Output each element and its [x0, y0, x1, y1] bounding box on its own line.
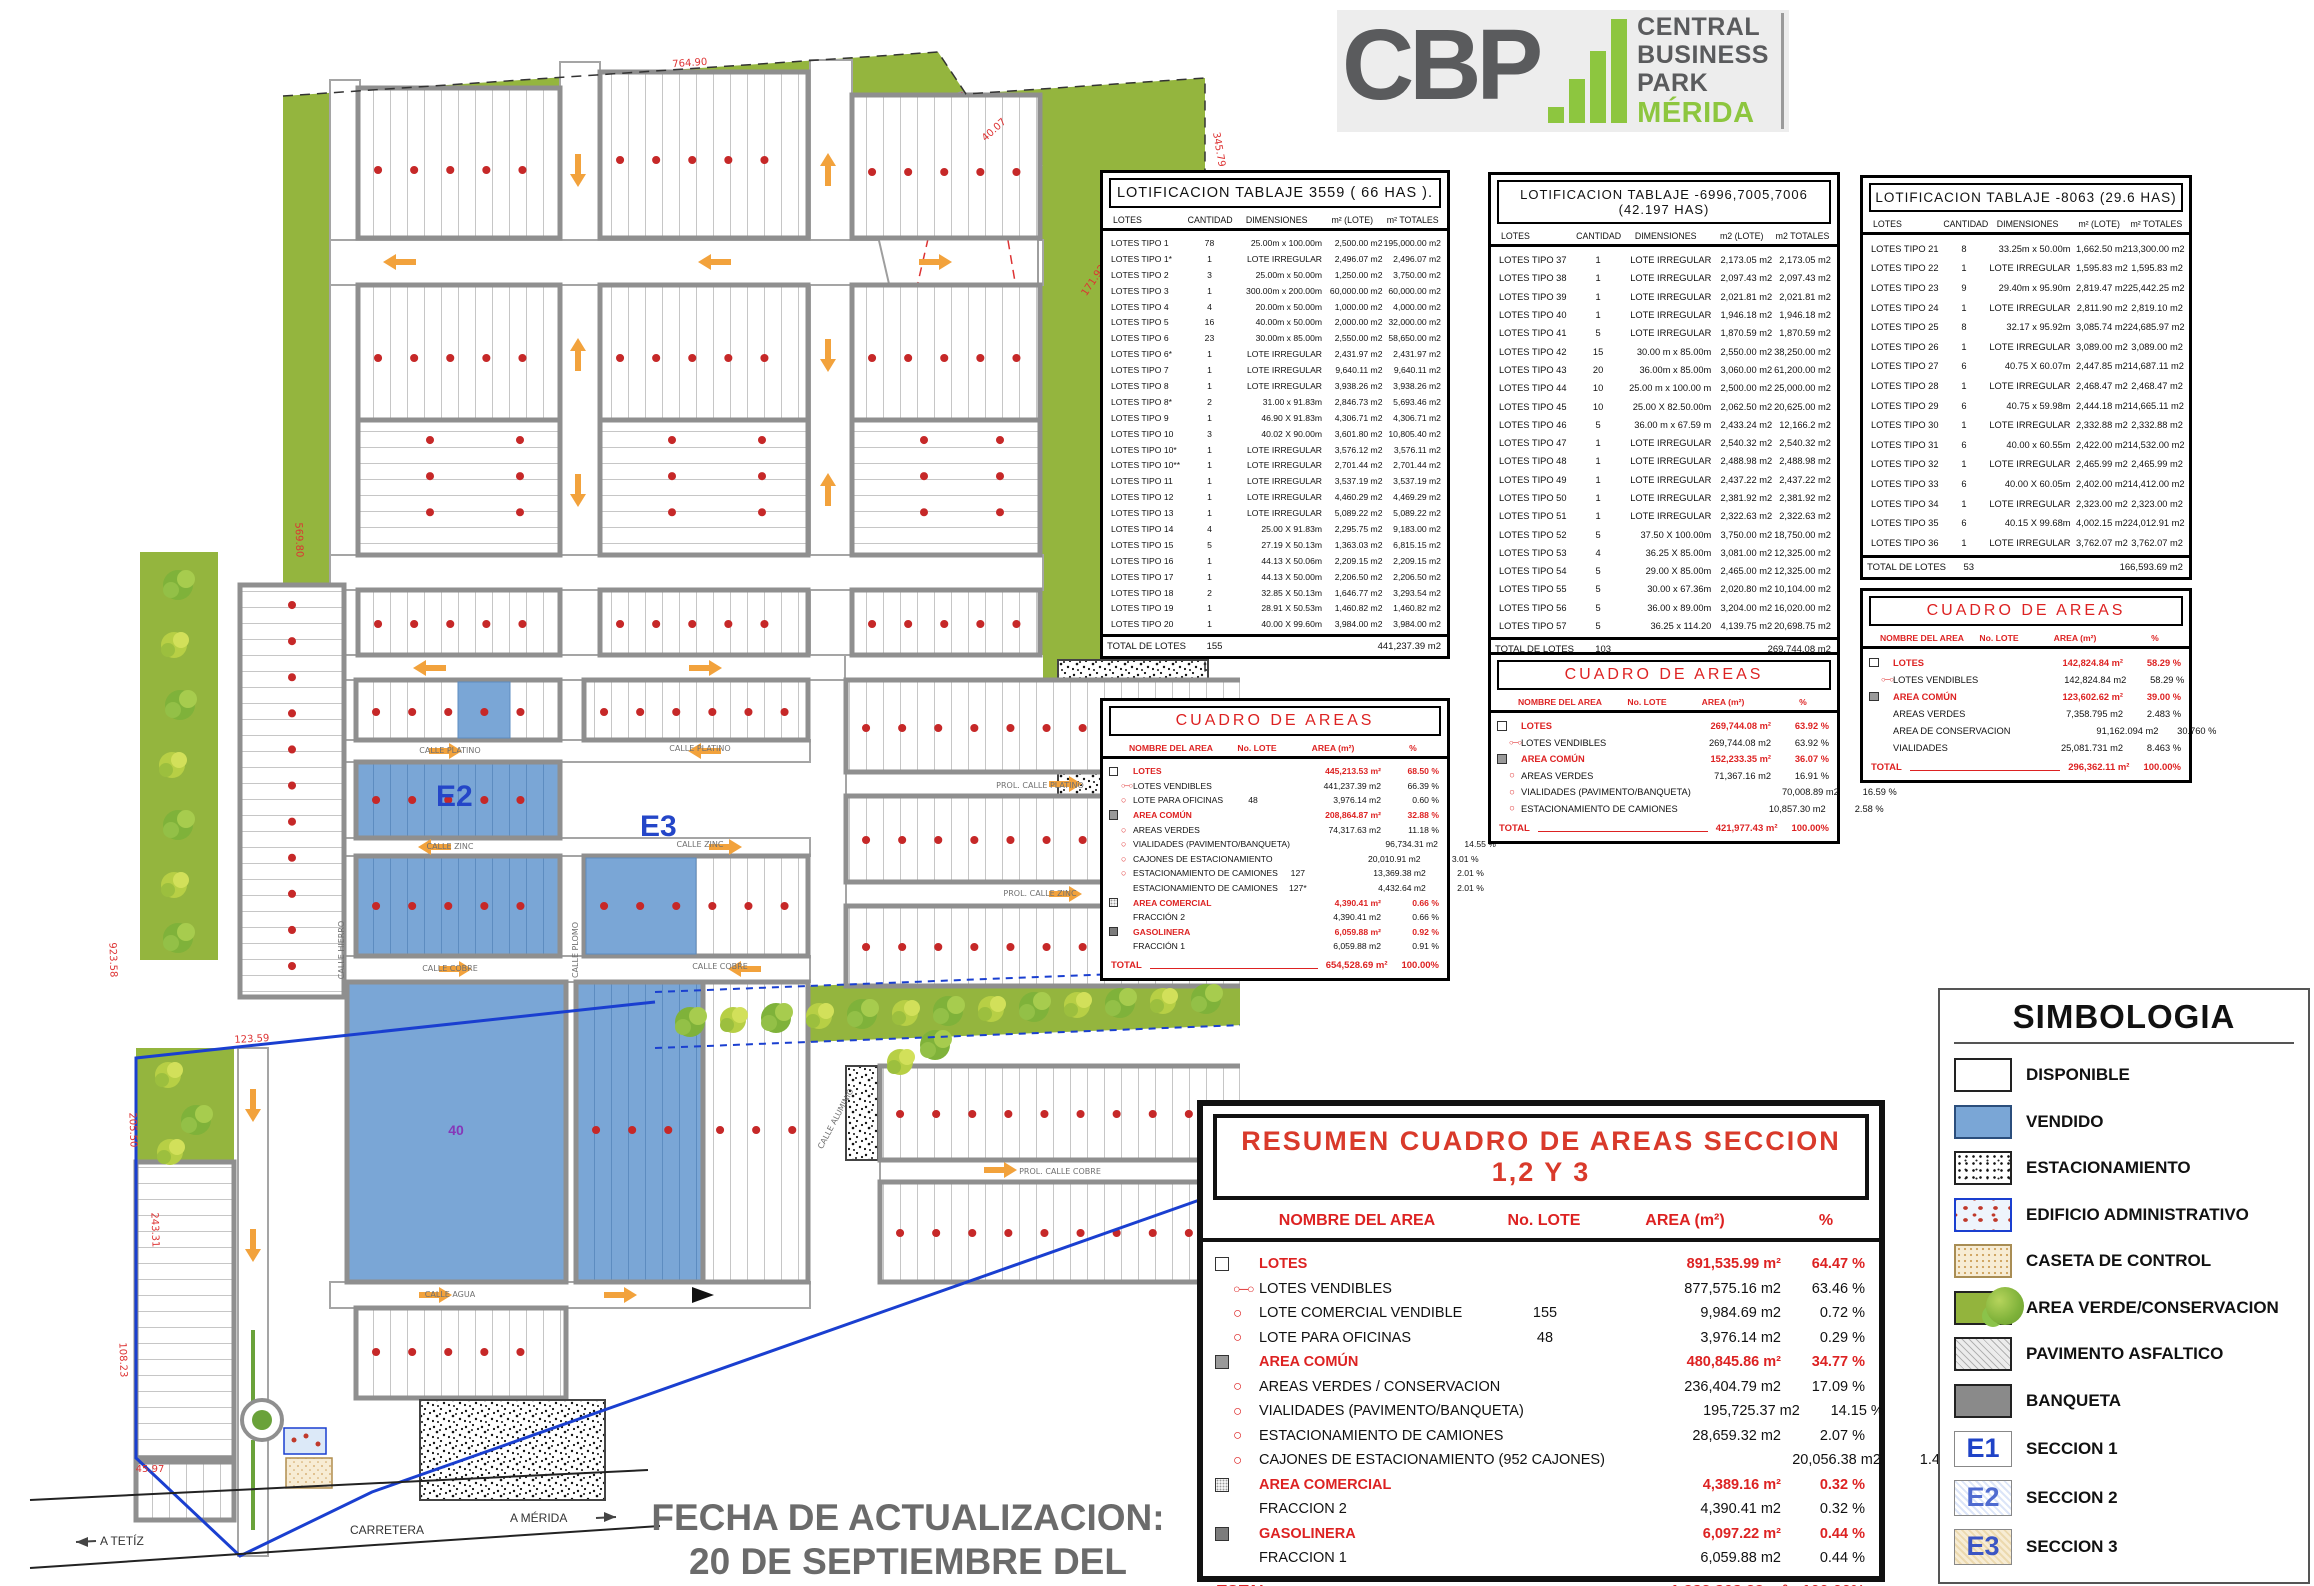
logo-city: MÉRIDA: [1637, 97, 1769, 129]
lot-row: LOTES TIPO 491LOTE IRREGULAR2,437.22 m22…: [1495, 471, 1833, 489]
area-row: AREA COMÚN480,845.86 m²34.77 %: [1215, 1350, 1867, 1375]
area-row: LOTES269,744.08 m²63.92 %: [1497, 718, 1831, 735]
area-row-icon: [1497, 721, 1521, 731]
lot-row: LOTES TIPO 121LOTE IRREGULAR4,460.29 m24…: [1107, 489, 1443, 505]
lot-row: LOTES TIPO 481LOTE IRREGULAR2,488.98 m22…: [1495, 452, 1833, 470]
legend-item: BANQUETA: [1954, 1378, 2294, 1425]
cuadro-title: CUADRO DE AREAS: [1109, 706, 1441, 736]
area-row: LOTES VENDIBLES877,575.16 m263.46 %: [1215, 1277, 1867, 1302]
lot-row: LOTES TIPO 62330.00m x 85.00m2,550.00 m2…: [1107, 330, 1443, 346]
lot-row: LOTES TIPO 111LOTE IRREGULAR3,537.19 m23…: [1107, 473, 1443, 489]
area-row-icon: [1509, 787, 1521, 798]
area-row-icon: [1869, 692, 1893, 702]
legend-item-label: DISPONIBLE: [2026, 1065, 2130, 1085]
svg-text:CALLE COBRE: CALLE COBRE: [422, 964, 478, 973]
area-row: FRACCION 16,059.88 m20.44 %: [1215, 1546, 1867, 1571]
big-lot-number: 40: [448, 1122, 464, 1138]
area-row-icon: [1233, 1427, 1259, 1444]
legend-swatch: [1954, 1291, 2012, 1325]
svg-text:CALLE COBRE: CALLE COBRE: [692, 962, 748, 971]
site-plan-map: A TETÍZ CARRETERA A MÉRIDA E2 E3 40 764.…: [0, 0, 1240, 1586]
update-date-line1: FECHA DE ACTUALIZACION:: [648, 1496, 1168, 1540]
area-row-icon: [1121, 839, 1133, 849]
cuadro-header: NOMBRE DEL AREANo. LOTEAREA (m²)%: [1491, 695, 1837, 713]
area-row-icon: [1497, 754, 1521, 764]
area-row: GASOLINERA6,059.88 m²0.92 %: [1109, 925, 1441, 940]
area-row-icon: [1121, 781, 1133, 790]
area-row: FRACCION 24,390.41 m20.32 %: [1215, 1497, 1867, 1522]
area-row-icon: [1233, 1282, 1259, 1296]
cuadro-total: TOTAL421,977.43 m²100.00%: [1491, 817, 1837, 841]
table-title: LOTIFICACION TABLAJE -8063 (29.6 HAS): [1869, 183, 2183, 212]
legend-item: PAVIMENTO ASFALTICO: [1954, 1331, 2294, 1378]
area-row: AREAS VERDES / CONSERVACION236,404.79 m2…: [1215, 1375, 1867, 1400]
area-row-icon: [1233, 1329, 1259, 1346]
legend-swatch: [1954, 1151, 2012, 1185]
lot-row: LOTES TIPO 21833.25m x 50.00m1,662.50 m2…: [1867, 239, 2185, 259]
area-row-icon: [1109, 810, 1133, 819]
cuadro-total: TOTAL654,528.69 m²100.00%: [1103, 954, 1447, 978]
svg-text:345.79: 345.79: [1210, 131, 1227, 167]
lot-row: LOTES TIPO 15527.19 X 50.13m1,363.03 m26…: [1107, 537, 1443, 553]
lot-row: LOTES TIPO 391LOTE IRREGULAR2,021.81 m22…: [1495, 288, 1833, 306]
legend-section-label: SECCION 2: [2026, 1488, 2118, 1508]
lot-row: LOTES TIPO 10340.02 X 90.00m3,601.80 m21…: [1107, 426, 1443, 442]
lot-row: LOTES TIPO 471LOTE IRREGULAR2,540.32 m22…: [1495, 434, 1833, 452]
logo-word: BUSINESS: [1637, 41, 1769, 69]
area-row-icon: [1121, 868, 1133, 878]
legend: SIMBOLOGIA DISPONIBLE VENDIDO ESTACIONAM…: [1938, 988, 2310, 1584]
area-row-icon: [1509, 803, 1521, 814]
area-row-icon: [1233, 1403, 1259, 1420]
area-row-icon: [1869, 658, 1893, 668]
legend-item: ESTACIONAMIENTO: [1954, 1145, 2294, 1192]
control-booth-icon: [286, 1458, 332, 1488]
lot-row: LOTES TIPO 33640.00 X 60.05m2,402.00 m21…: [1867, 474, 2185, 494]
area-row-icon: [1109, 767, 1133, 776]
area-row: LOTES VENDIBLES142,824.84 m258.29 %: [1869, 671, 2183, 688]
svg-text:PROL. CALLE ZINC: PROL. CALLE ZINC: [1003, 889, 1077, 898]
cuadro-title: CUADRO DE AREAS: [1497, 660, 1831, 690]
legend-swatch: [1954, 1337, 2012, 1371]
lot-row: LOTES TIPO 56536.00 x 89.00m3,204.00 m21…: [1495, 599, 1833, 617]
resumen-total: TOTAL1,382,868.23 m²100.00%: [1203, 1571, 1879, 1586]
table-title: LOTIFICACION TABLAJE 3559 ( 66 HAS ).: [1109, 178, 1441, 208]
legend-swatch: [1954, 1244, 2012, 1278]
lot-row: LOTES TIPO 451025.00 X 82.50.00m2,062.50…: [1495, 397, 1833, 415]
legend-section-label: SECCION 1: [2026, 1439, 2118, 1459]
lot-table-3: LOTIFICACION TABLAJE -8063 (29.6 HAS) LO…: [1860, 175, 2192, 580]
area-row-icon: [1215, 1478, 1259, 1492]
update-date: FECHA DE ACTUALIZACION: 20 DE SEPTIEMBRE…: [648, 1496, 1168, 1586]
lot-row: LOTES TIPO 281LOTE IRREGULAR2,468.47 m22…: [1867, 376, 2185, 396]
lot-table-2: LOTIFICACION TABLAJE -6996,7005,7006 (42…: [1488, 172, 1840, 662]
lot-row: LOTES TIPO 6*1LOTE IRREGULAR2,431.97 m22…: [1107, 346, 1443, 362]
area-row-icon: [1233, 1378, 1259, 1395]
area-row-icon: [1215, 1355, 1259, 1369]
area-row: ESTACIONAMIENTO DE CAMIONES28,659.32 m22…: [1215, 1424, 1867, 1449]
update-date-line2: 20 DE SEPTIEMBRE DEL 2023: [648, 1540, 1168, 1586]
table-header: LOTESCANTIDADDIMENSIONESm² (LOTE)m² TOTA…: [1103, 213, 1447, 231]
area-row: AREA COMERCIAL4,390.41 m²0.66 %: [1109, 895, 1441, 910]
cuadro-header: NOMBRE DEL AREANo. LOTEAREA (m²)%: [1863, 631, 2189, 649]
lot-row: LOTES TIPO 131LOTE IRREGULAR5,089.22 m25…: [1107, 505, 1443, 521]
area-row: AREAS VERDES7,358.795 m22.483 %: [1869, 705, 2183, 722]
legend-item-label: CASETA DE CONTROL: [2026, 1251, 2211, 1271]
area-row-icon: [1233, 1305, 1259, 1322]
section-code: E2: [1954, 1480, 2012, 1516]
lot-row: LOTES TIPO 52537.50 X 100.00m3,750.00 m2…: [1495, 525, 1833, 543]
lot-row: LOTES TIPO 54529.00 X 85.00m2,465.00 m21…: [1495, 562, 1833, 580]
legend-item: AREA VERDE/CONSERVACION: [1954, 1285, 2294, 1332]
area-row: LOTE PARA OFICINAS483,976.14 m20.60 %: [1109, 793, 1441, 808]
area-row: LOTES891,535.99 m²64.47 %: [1215, 1252, 1867, 1277]
resumen-table: RESUMEN CUADRO DE AREAS SECCION 1,2 Y 3 …: [1197, 1100, 1885, 1582]
lot-row: LOTES TIPO 10*1LOTE IRREGULAR3,576.12 m2…: [1107, 442, 1443, 458]
legend-section-label: SECCION 3: [2026, 1537, 2118, 1557]
lot-row: LOTES TIPO 53436.25 X 85.00m3,081.00 m21…: [1495, 544, 1833, 562]
table-total: TOTAL DE LOTES155441,237.39 m2: [1103, 634, 1447, 656]
logo-word: CENTRAL: [1637, 13, 1769, 41]
lot-row: LOTES TIPO 432036.00m x 85.00m3,060.00 m…: [1495, 361, 1833, 379]
lot-row: LOTES TIPO 27640.75 X 60.07m2,447.85 m21…: [1867, 357, 2185, 377]
area-row: CAJONES DE ESTACIONAMIENTO20,010.91 m23.…: [1109, 852, 1441, 867]
lot-row: LOTES TIPO 14425.00 X 91.83m2,295.75 m29…: [1107, 521, 1443, 537]
lot-row: LOTES TIPO 46536.00 m x 67.59 m2,433.24 …: [1495, 416, 1833, 434]
lot-row: LOTES TIPO 9146.90 X 91.83m4,306.71 m24,…: [1107, 410, 1443, 426]
lot-row: LOTES TIPO 57536.25 x 114.204,139.75 m22…: [1495, 617, 1833, 635]
svg-text:CALLE AGUA: CALLE AGUA: [425, 1290, 476, 1299]
resumen-title: RESUMEN CUADRO DE AREAS SECCION 1,2 Y 3: [1213, 1114, 1869, 1200]
area-row: AREA DE CONSERVACION91,162.094 m230.760 …: [1869, 722, 2183, 739]
lot-row: LOTES TIPO 29640.75 x 59.98m2,444.18 m21…: [1867, 396, 2185, 416]
area-row: AREA COMÚN208,864.87 m²32.88 %: [1109, 808, 1441, 823]
lot-row: LOTES TIPO 31300.00m x 200.00m60,000.00 …: [1107, 283, 1443, 299]
legend-section-item: E3 SECCION 3: [1954, 1522, 2294, 1571]
lot-row: LOTES TIPO 55530.00 x 67.36m2,020.80 m21…: [1495, 580, 1833, 598]
lot-row: LOTES TIPO 421530.00 m x 85.00m2,550.00 …: [1495, 342, 1833, 360]
area-row: ESTACIONAMIENTO DE CAMIONES127*4,432.64 …: [1109, 881, 1441, 896]
lot-row: LOTES TIPO 321LOTE IRREGULAR2,465.99 m22…: [1867, 455, 2185, 475]
cuadro-total: TOTAL296,362.11 m²100.00%: [1863, 756, 2189, 780]
area-row: AREA COMÚN123,602.62 m²39.00 %: [1869, 688, 2183, 705]
lot-row: LOTES TIPO 31640.00 x 60.55m2,422.00 m21…: [1867, 435, 2185, 455]
svg-text:45.97: 45.97: [136, 1464, 165, 1475]
cuadro-title: CUADRO DE AREAS: [1869, 596, 2183, 626]
table-title: LOTIFICACION TABLAJE -6996,7005,7006 (42…: [1497, 180, 1831, 224]
legend-swatch: [1954, 1198, 2012, 1232]
lot-row: LOTES TIPO 2325.00m x 50.00m1,250.00 m23…: [1107, 267, 1443, 283]
lot-row: LOTES TIPO 401LOTE IRREGULAR1,946.18 m21…: [1495, 306, 1833, 324]
legend-item-label: ESTACIONAMIENTO: [2026, 1158, 2191, 1178]
legend-item-label: PAVIMENTO ASFALTICO: [2026, 1344, 2223, 1364]
area-row: AREA COMÚN152,233.35 m²36.07 %: [1497, 751, 1831, 768]
svg-text:CALLE PLATINO: CALLE PLATINO: [419, 746, 480, 755]
area-row-icon: [1509, 738, 1521, 747]
area-row: AREAS VERDES74,317.63 m211.18 %: [1109, 822, 1441, 837]
legend-item-label: VENDIDO: [2026, 1112, 2103, 1132]
area-row-icon: [1233, 1452, 1259, 1469]
area-row: LOTES445,213.53 m²68.50 %: [1109, 764, 1441, 779]
legend-title: SIMBOLOGIA: [1954, 998, 2294, 1044]
svg-text:CALLE PLATINO: CALLE PLATINO: [669, 744, 730, 753]
lot-row: LOTES TIPO 17825.00m x 100.00m2,500.00 m…: [1107, 235, 1443, 251]
area-row-icon: [1121, 854, 1133, 864]
lot-row: LOTES TIPO 441025.00 m x 100.00 m2,500.0…: [1495, 379, 1833, 397]
lot-row: LOTES TIPO 511LOTE IRREGULAR2,322.63 m22…: [1495, 507, 1833, 525]
area-row: GASOLINERA6,097.22 m²0.44 %: [1215, 1522, 1867, 1547]
area-row: CAJONES DE ESTACIONAMIENTO (952 CAJONES)…: [1215, 1448, 1867, 1473]
svg-text:CALLE ZINC: CALLE ZINC: [677, 840, 724, 849]
section3-marker: E3: [640, 810, 677, 843]
cuadro-areas-3: CUADRO DE AREAS NOMBRE DEL AREANo. LOTEA…: [1860, 588, 2192, 783]
area-row: LOTE PARA OFICINAS483,976.14 m20.29 %: [1215, 1326, 1867, 1351]
area-row: LOTES VENDIBLES441,237.39 m266.39 %: [1109, 779, 1441, 794]
table-total: TOTAL DE LOTES53166,593.69 m2: [1863, 555, 2189, 577]
lot-row: LOTES TIPO 16144.13 X 50.06m2,209.15 m22…: [1107, 553, 1443, 569]
svg-text:569.80: 569.80: [292, 522, 304, 557]
cuadro-header: NOMBRE DEL AREANo. LOTEAREA (m²)%: [1103, 741, 1447, 759]
legend-swatch: [1954, 1384, 2012, 1418]
lot-row: LOTES TIPO 23929.40m x 95.90m2,819.47 m2…: [1867, 278, 2185, 298]
table-header: LOTESCANTIDADDIMENSIONESm2 (LOTE)m2 TOTA…: [1491, 229, 1837, 247]
area-row-icon: [1109, 927, 1133, 936]
lot-blocks-middle: [347, 680, 808, 1500]
lot-row: LOTES TIPO 221LOTE IRREGULAR1,595.83 m21…: [1867, 259, 2185, 279]
legend-item-label: BANQUETA: [2026, 1391, 2121, 1411]
area-row-icon: [1121, 795, 1133, 805]
area-row: LOTES VENDIBLES269,744.08 m263.92 %: [1497, 735, 1831, 752]
svg-text:CALLE PLOMO: CALLE PLOMO: [571, 922, 580, 978]
table-header: LOTESCANTIDADDIMENSIONESm² (LOTE)m² TOTA…: [1863, 217, 2189, 235]
lot-row: LOTES TIPO 301LOTE IRREGULAR2,332.88 m22…: [1867, 415, 2185, 435]
area-row-icon: [1215, 1527, 1259, 1541]
section2-marker: E2: [436, 780, 473, 813]
legend-item-label: EDIFICIO ADMINISTRATIVO: [2026, 1205, 2249, 1225]
lot-row: LOTES TIPO 17144.13 X 50.00m2,206.50 m22…: [1107, 569, 1443, 585]
svg-text:CALLE HIERRO: CALLE HIERRO: [337, 921, 346, 979]
admin-building-icon: [284, 1428, 326, 1454]
lot-row: LOTES TIPO 8*231.00 x 91.83m2,846.73 m25…: [1107, 394, 1443, 410]
legend-section-item: E2 SECCION 2: [1954, 1473, 2294, 1522]
cuadro-areas-1: CUADRO DE AREAS NOMBRE DEL AREANo. LOTEA…: [1100, 698, 1450, 981]
lot-row: LOTES TIPO 19128.91 X 50.53m1,460.82 m21…: [1107, 600, 1443, 616]
cuadro-areas-2: CUADRO DE AREAS NOMBRE DEL AREANo. LOTEA…: [1488, 652, 1840, 844]
lot-row: LOTES TIPO 261LOTE IRREGULAR3,089.00 m23…: [1867, 337, 2185, 357]
lot-row: LOTES TIPO 10**1LOTE IRREGULAR2,701.44 m…: [1107, 457, 1443, 473]
lot-row: LOTES TIPO 361LOTE IRREGULAR3,762.07 m23…: [1867, 533, 2185, 553]
section-code: E3: [1954, 1529, 2012, 1565]
lot-row: LOTES TIPO 51640.00m x 50.00m2,000.00 m2…: [1107, 314, 1443, 330]
road-label-merida: A MÉRIDA: [510, 1510, 567, 1525]
legend-item: VENDIDO: [1954, 1099, 2294, 1146]
logo-abbr: CBP: [1342, 15, 1538, 115]
svg-text:243.31: 243.31: [148, 1212, 160, 1247]
area-row: ESTACIONAMIENTO DE CAMIONES10,857.30 m22…: [1497, 801, 1831, 818]
lot-row: LOTES TIPO 4420.00m x 50.00m1,000.00 m24…: [1107, 299, 1443, 315]
svg-text:923.58: 923.58: [106, 942, 118, 977]
svg-text:205.50: 205.50: [126, 1112, 138, 1147]
svg-text:PROL. CALLE COBRE: PROL. CALLE COBRE: [1019, 1167, 1101, 1176]
svg-text:123.59: 123.59: [234, 1033, 270, 1046]
legend-item: EDIFICIO ADMINISTRATIVO: [1954, 1192, 2294, 1239]
area-row: FRACCIÓN 16,059.88 m20.91 %: [1109, 939, 1441, 954]
svg-text:CALLE ZINC: CALLE ZINC: [427, 842, 474, 851]
lot-row: LOTES TIPO 1*1LOTE IRREGULAR2,496.07 m22…: [1107, 251, 1443, 267]
area-row: VIALIDADES (PAVIMENTO/BANQUETA)96,734.31…: [1109, 837, 1441, 852]
area-row: LOTE COMERCIAL VENDIBLE1559,984.69 m20.7…: [1215, 1301, 1867, 1326]
sheet: A TETÍZ CARRETERA A MÉRIDA E2 E3 40 764.…: [0, 0, 2314, 1586]
logo-bars-icon: [1548, 19, 1627, 123]
area-row: VIALIDADES (PAVIMENTO/BANQUETA)70,008.89…: [1497, 784, 1831, 801]
area-row: AREA COMERCIAL4,389.16 m²0.32 %: [1215, 1473, 1867, 1498]
area-row-icon: [1121, 825, 1133, 835]
lot-row: LOTES TIPO 415LOTE IRREGULAR1,870.59 m21…: [1495, 324, 1833, 342]
road-label-carretera: CARRETERA: [350, 1523, 424, 1537]
legend-item-label: AREA VERDE/CONSERVACION: [2026, 1298, 2279, 1318]
legend-swatch: [1954, 1058, 2012, 1092]
lot-row: LOTES TIPO 18232.85 X 50.13m1,646.77 m23…: [1107, 585, 1443, 601]
area-row-icon: [1509, 770, 1521, 781]
area-row: LOTES142,824.84 m²58.29 %: [1869, 654, 2183, 671]
lot-row: LOTES TIPO 241LOTE IRREGULAR2,811.90 m22…: [1867, 298, 2185, 318]
area-row-icon: [1109, 898, 1133, 907]
area-row: VIALIDADES25,081.731 m28.463 %: [1869, 739, 2183, 756]
lot-row: LOTES TIPO 20140.00 X 99.60m3,984.00 m23…: [1107, 616, 1443, 632]
area-row-icon: [1215, 1257, 1259, 1271]
logo-word: PARK: [1637, 69, 1769, 97]
logo: CBP CENTRAL BUSINESS PARK MÉRIDA: [1337, 10, 1789, 132]
lot-row: LOTES TIPO 501LOTE IRREGULAR2,381.92 m22…: [1495, 489, 1833, 507]
section-code: E1: [1954, 1431, 2012, 1467]
lot-row: LOTES TIPO 371LOTE IRREGULAR2,173.05 m22…: [1495, 251, 1833, 269]
lot-row: LOTES TIPO 81LOTE IRREGULAR3,938.26 m23,…: [1107, 378, 1443, 394]
lot-row: LOTES TIPO 381LOTE IRREGULAR2,097.43 m22…: [1495, 269, 1833, 287]
lot-row: LOTES TIPO 25832.17 x 95.92m3,085.74 m22…: [1867, 317, 2185, 337]
area-row: VIALIDADES (PAVIMENTO/BANQUETA)195,725.3…: [1215, 1399, 1867, 1424]
area-row: AREAS VERDES71,367.16 m216.91 %: [1497, 768, 1831, 785]
area-row-icon: [1881, 675, 1893, 684]
lot-row: LOTES TIPO 35640.15 X 99.68m4,002.15 m22…: [1867, 513, 2185, 533]
logo-wordmark: CENTRAL BUSINESS PARK MÉRIDA: [1637, 13, 1784, 129]
legend-item: CASETA DE CONTROL: [1954, 1238, 2294, 1285]
resumen-header: NOMBRE DEL AREANo. LOTEAREA (m²)%: [1203, 1208, 1879, 1242]
lot-row: LOTES TIPO 71LOTE IRREGULAR9,640.11 m29,…: [1107, 362, 1443, 378]
area-row: ESTACIONAMIENTO DE CAMIONES12713,369.38 …: [1109, 866, 1441, 881]
road-label-tetiz: A TETÍZ: [100, 1533, 144, 1548]
lot-row: LOTES TIPO 341LOTE IRREGULAR2,323.00 m22…: [1867, 494, 2185, 514]
legend-item: DISPONIBLE: [1954, 1052, 2294, 1099]
svg-text:PROL. CALLE PLATINO: PROL. CALLE PLATINO: [996, 781, 1084, 790]
svg-text:108.23: 108.23: [116, 1342, 128, 1377]
lot-table-1: LOTIFICACION TABLAJE 3559 ( 66 HAS ). LO…: [1100, 170, 1450, 659]
area-row: FRACCIÓN 24,390.41 m20.66 %: [1109, 910, 1441, 925]
legend-swatch: [1954, 1105, 2012, 1139]
legend-section-item: E1 SECCION 1: [1954, 1424, 2294, 1473]
